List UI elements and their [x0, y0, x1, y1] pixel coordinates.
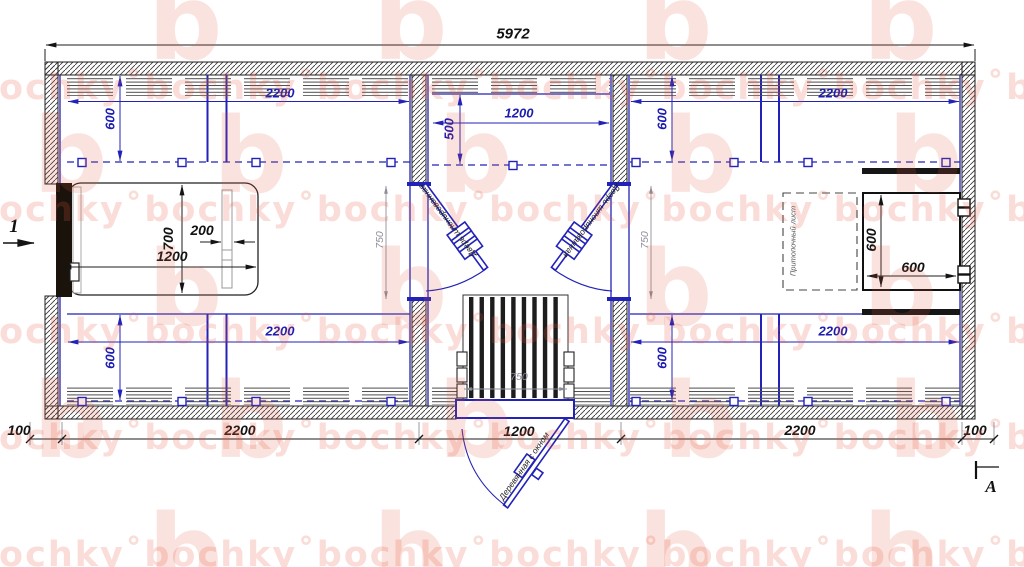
stove-sheet-label: Притопочный лист: [789, 206, 798, 276]
dim-grate-width: 750: [510, 371, 528, 383]
dim-room-length-bottom-left: 2200: [266, 324, 295, 339]
door-lintels: [407, 182, 631, 301]
dim-bench-depth-bottom-left: 600: [103, 347, 118, 369]
dim-room-length-top-left: 2200: [266, 86, 295, 101]
guard-bar-top: [862, 168, 960, 174]
dim-bed-length: 1200: [156, 248, 187, 264]
dim-room-length-bottom-right: 2200: [819, 324, 848, 339]
dim-bench-depth-top-left: 600: [103, 108, 118, 130]
guard-bar-bottom: [862, 309, 960, 315]
dim-door-opening-right: 750: [639, 231, 651, 249]
entry-door-frame: [456, 400, 574, 418]
entry-grate: [456, 295, 574, 418]
floor-plan-drawing: 5972 2200 2200 600 600 1200 500 2200 220…: [0, 0, 1024, 567]
dim-chain-room-left: 2200: [224, 422, 255, 438]
dim-center-shelf-depth: 500: [442, 118, 457, 140]
dim-side-margin-right: 100: [963, 422, 986, 438]
dim-room-length-top-right: 2200: [819, 86, 848, 101]
bed-area: [56, 183, 258, 297]
dim-headrest-width: 200: [190, 222, 213, 238]
dim-chain-center: 1200: [503, 423, 534, 439]
dim-bench-depth-top-right: 600: [655, 108, 670, 130]
dim-side-margin-left: 100: [7, 422, 30, 438]
headrest: [222, 190, 232, 288]
section-marker-a-label: А: [985, 477, 996, 497]
dim-chain-room-right: 2200: [784, 422, 815, 438]
dim-bench-depth-bottom-right: 600: [655, 347, 670, 369]
dim-stove-width: 600: [901, 259, 924, 275]
dim-door-opening-left: 750: [374, 231, 386, 249]
section-marker-1-label: 1: [9, 216, 19, 238]
dim-center-width: 1200: [505, 106, 534, 121]
dim-overall-length: 5972: [496, 26, 529, 43]
dim-stove-depth: 600: [863, 228, 879, 251]
